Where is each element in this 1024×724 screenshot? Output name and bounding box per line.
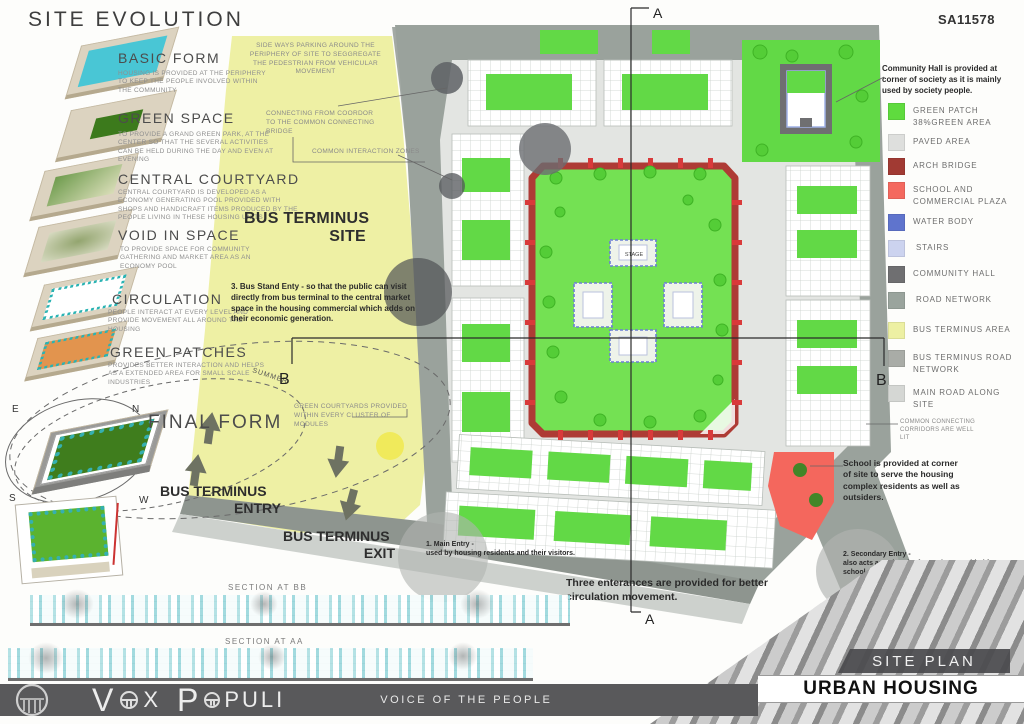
- svg-text:N: N: [132, 404, 139, 415]
- corridors-lit-annotation: COMMON CONNECTING CORRIDORS ARE WELL LIT: [900, 418, 980, 442]
- legend-label: PAVED AREA: [913, 134, 971, 148]
- legend-item-green-patch: GREEN PATCH 38%GREEN AREA: [888, 103, 1022, 128]
- stage-label: STAGE: [625, 252, 644, 258]
- legend-swatch: [888, 266, 905, 283]
- step-desc-basic-form: HOUSING IS PROVIDED AT THE PERIPHERY TO …: [118, 70, 268, 95]
- svg-text:A: A: [653, 5, 663, 21]
- legend-sublabel: 38%GREEN AREA: [913, 118, 991, 127]
- community-hall: [780, 64, 832, 134]
- step-name-void-in-space: VOID IN SPACE: [118, 227, 240, 243]
- brand-tagline: VOICE OF THE PEOPLE: [380, 694, 552, 706]
- svg-text:B: B: [876, 372, 887, 389]
- svg-text:S: S: [9, 493, 16, 504]
- legend-swatch: [888, 350, 905, 367]
- bus-terminus-exit-label: BUS TERMINUS EXIT: [283, 528, 413, 562]
- legend-item-water-body: WATER BODY: [888, 214, 1022, 231]
- wordmark-letter: P: [177, 682, 200, 719]
- legend-swatch: [888, 134, 905, 151]
- green-courtyards-annotation: GREEN COURTYARDS PROVIDED WITHIN EVERY C…: [294, 403, 419, 429]
- legend-swatch: [888, 292, 905, 309]
- wordmark-letter: V: [92, 682, 115, 719]
- legend-swatch: [888, 385, 905, 402]
- project-title-label: URBAN HOUSING: [803, 678, 979, 700]
- legend-label: BUS TERMINUS ROAD NETWORK: [913, 350, 1022, 375]
- legend-item-bus-terminus-area: BUS TERMINUS AREA: [888, 322, 1022, 339]
- o-glyph-icon: [120, 691, 138, 709]
- legend-swatch: [888, 182, 905, 199]
- bus-stand-entry-note: 3. Bus Stand Enty - so that the public c…: [231, 282, 419, 325]
- legend-label: BUS TERMINUS AREA: [913, 322, 1010, 336]
- legend-label: MAIN ROAD ALONG SITE: [913, 385, 1022, 410]
- main-entry-title: 1. Main Entry -: [426, 540, 636, 549]
- legend-item-community-hall: COMMUNITY HALL: [888, 266, 1022, 283]
- entrances-note: Three enterances are provided for better…: [566, 576, 781, 604]
- bus-site-line1: BUS TERMINUS: [244, 210, 384, 228]
- secondary-entry-title: 2. Secondary Entry -: [843, 550, 1003, 559]
- main-entry-note: 1. Main Entry - used by housing resident…: [426, 540, 636, 558]
- site-plan-plate-label: SITE PLAN: [872, 653, 976, 670]
- bus-terminus-entry-label: BUS TERMINUS ENTRY: [160, 483, 325, 517]
- legend-item-stairs: STAIRS: [888, 240, 1022, 257]
- legend-item-paved-area: PAVED AREA: [888, 134, 1022, 151]
- svg-text:B: B: [279, 371, 290, 388]
- section-aa-elevation: [8, 648, 533, 681]
- parking-annotation: SIDE WAYS PARKING AROUND THE PERIPHERY O…: [248, 42, 383, 77]
- legend-item-arch-bridge: ARCH BRIDGE: [888, 158, 1022, 175]
- section-bb-elevation: [30, 595, 570, 626]
- step-name-green-patches: GREEN PATCHES: [110, 344, 247, 360]
- bus-entry-line1: BUS TERMINUS: [160, 483, 325, 500]
- legend-label: SCHOOL AND COMMERCIAL PLAZA: [913, 182, 1022, 207]
- step-name-circulation: CIRCULATION: [112, 291, 222, 307]
- step-name-central-courtyard: CENTRAL COURTYARD: [118, 171, 300, 187]
- legend-item-school-plaza: SCHOOL AND COMMERCIAL PLAZA: [888, 182, 1022, 207]
- legend-label: ARCH BRIDGE: [913, 158, 977, 172]
- step-desc-green-space: TO PROVIDE A GRAND GREEN PARK, AT THE CE…: [118, 131, 278, 165]
- page-title: SITE EVOLUTION: [28, 8, 244, 32]
- legend-swatch: [888, 103, 905, 120]
- wordmark-letter: PULI: [224, 687, 285, 713]
- svg-text:E: E: [12, 404, 19, 415]
- bus-entry-line2: ENTRY: [160, 500, 325, 517]
- legend-label: ROAD NETWORK: [913, 292, 992, 306]
- step-desc-void-in-space: TO PROVIDE SPACE FOR COMMUNITY GATHERING…: [120, 246, 270, 271]
- o-glyph-icon: [204, 692, 220, 708]
- sun-icon: [376, 432, 404, 460]
- project-title-plate: URBAN HOUSING: [758, 675, 1024, 703]
- vox-populi-logo-icon: [14, 682, 50, 718]
- bus-exit-line1: BUS TERMINUS: [283, 528, 413, 545]
- step-desc-green-patches: PROVIDES BETTER INTERACTION AND HELPS AS…: [108, 362, 268, 387]
- legend-swatch: [888, 214, 905, 231]
- legend-item-main-road: MAIN ROAD ALONG SITE: [888, 385, 1022, 410]
- legend-swatch: [888, 322, 905, 339]
- main-entry-desc: used by housing residents and their visi…: [426, 549, 636, 558]
- brand-wordmark: V X P PULI: [92, 682, 285, 719]
- corridor-bridge-annotation: CONNECTING FROM COORDOR TO THE COMMON CO…: [266, 110, 381, 136]
- sheet-code: SA11578: [938, 12, 995, 27]
- bus-site-line2: SITE: [244, 228, 384, 246]
- legend-label: GREEN PATCH: [913, 106, 978, 115]
- final-form-label: FINAL FORM: [148, 412, 282, 434]
- footer-bar: V X P PULI VOICE OF THE PEOPLE: [0, 684, 758, 716]
- legend-swatch: [888, 240, 905, 257]
- wordmark-letter: X: [143, 687, 161, 713]
- legend-label: STAIRS: [913, 240, 949, 254]
- step-name-green-space: GREEN SPACE: [118, 110, 235, 126]
- presentation-board: STAGE E N S W SUMMER WINTER: [0, 0, 1024, 724]
- legend-label: WATER BODY: [913, 214, 974, 228]
- interaction-zones-annotation: COMMON INTERACTION ZONES: [312, 148, 452, 157]
- step-name-basic-form: BASIC FORM: [118, 50, 220, 66]
- svg-text:W: W: [139, 495, 149, 506]
- legend-label: COMMUNITY HALL: [913, 266, 996, 280]
- community-hall-note: Community Hall is provided at corner of …: [882, 64, 1020, 96]
- bus-exit-line2: EXIT: [283, 545, 413, 562]
- legend-swatch: [888, 158, 905, 175]
- legend-item-road-network: ROAD NETWORK: [888, 292, 1022, 309]
- school-note: School is provided at corner of site to …: [843, 458, 963, 504]
- legend-item-bus-terminus-road: BUS TERMINUS ROAD NETWORK: [888, 350, 1022, 375]
- site-plan-plate: SITE PLAN: [838, 649, 1010, 673]
- svg-text:A: A: [645, 611, 655, 627]
- mini-plan-thumbnail: [15, 496, 124, 585]
- bus-terminus-site-label: BUS TERMINUS SITE: [244, 210, 384, 247]
